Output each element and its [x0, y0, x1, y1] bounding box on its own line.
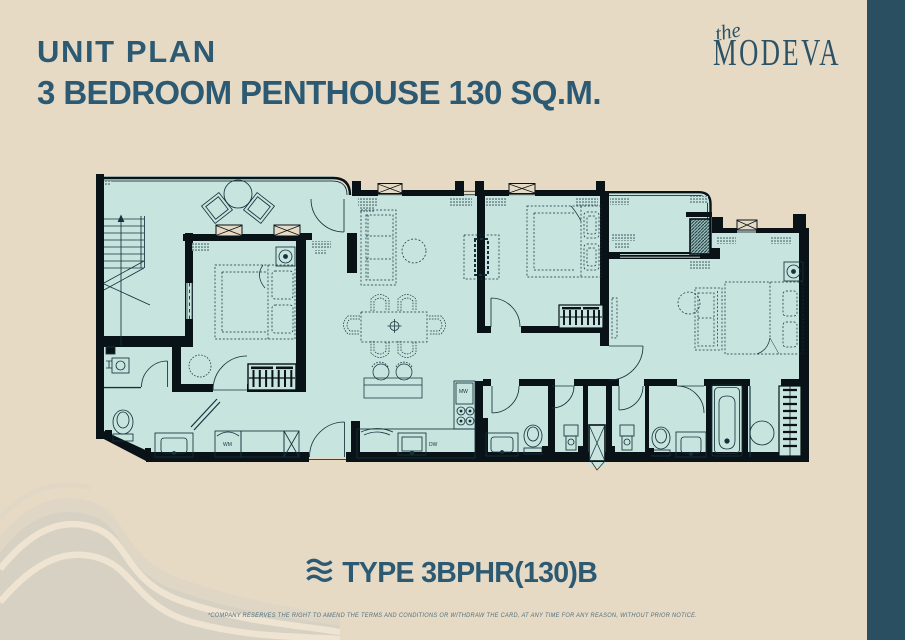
svg-text:MW: MW	[459, 389, 468, 395]
svg-text:WM: WM	[223, 442, 232, 448]
svg-text:DW: DW	[429, 442, 438, 448]
